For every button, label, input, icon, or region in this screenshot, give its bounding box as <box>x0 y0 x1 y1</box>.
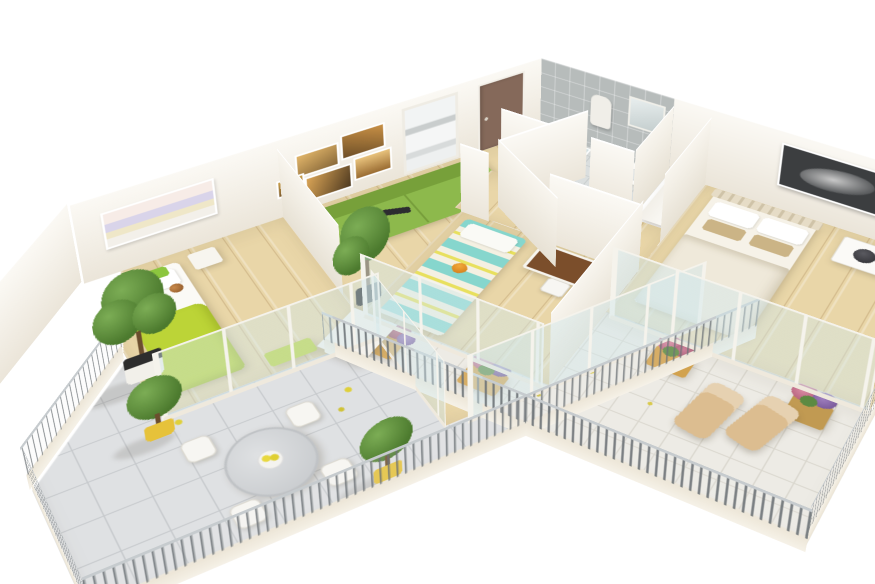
bedroom2-wall-back <box>460 143 489 221</box>
sofa-seam <box>404 195 430 223</box>
petal <box>647 401 654 406</box>
master-wall-art <box>777 142 875 222</box>
nightstand <box>187 246 224 270</box>
dark-bag <box>850 247 875 266</box>
art-motif <box>800 164 875 200</box>
master-sideboard <box>830 236 875 292</box>
floorplan-render <box>0 0 875 584</box>
fallen-lemon <box>337 406 345 412</box>
left-end-wall <box>0 202 81 397</box>
terrace-chair <box>178 434 219 465</box>
terrace-chair <box>283 399 323 429</box>
door-handle <box>485 117 489 122</box>
bathrobe <box>590 93 612 130</box>
fallen-lemon <box>343 386 353 393</box>
kids-wall-art <box>100 178 218 250</box>
